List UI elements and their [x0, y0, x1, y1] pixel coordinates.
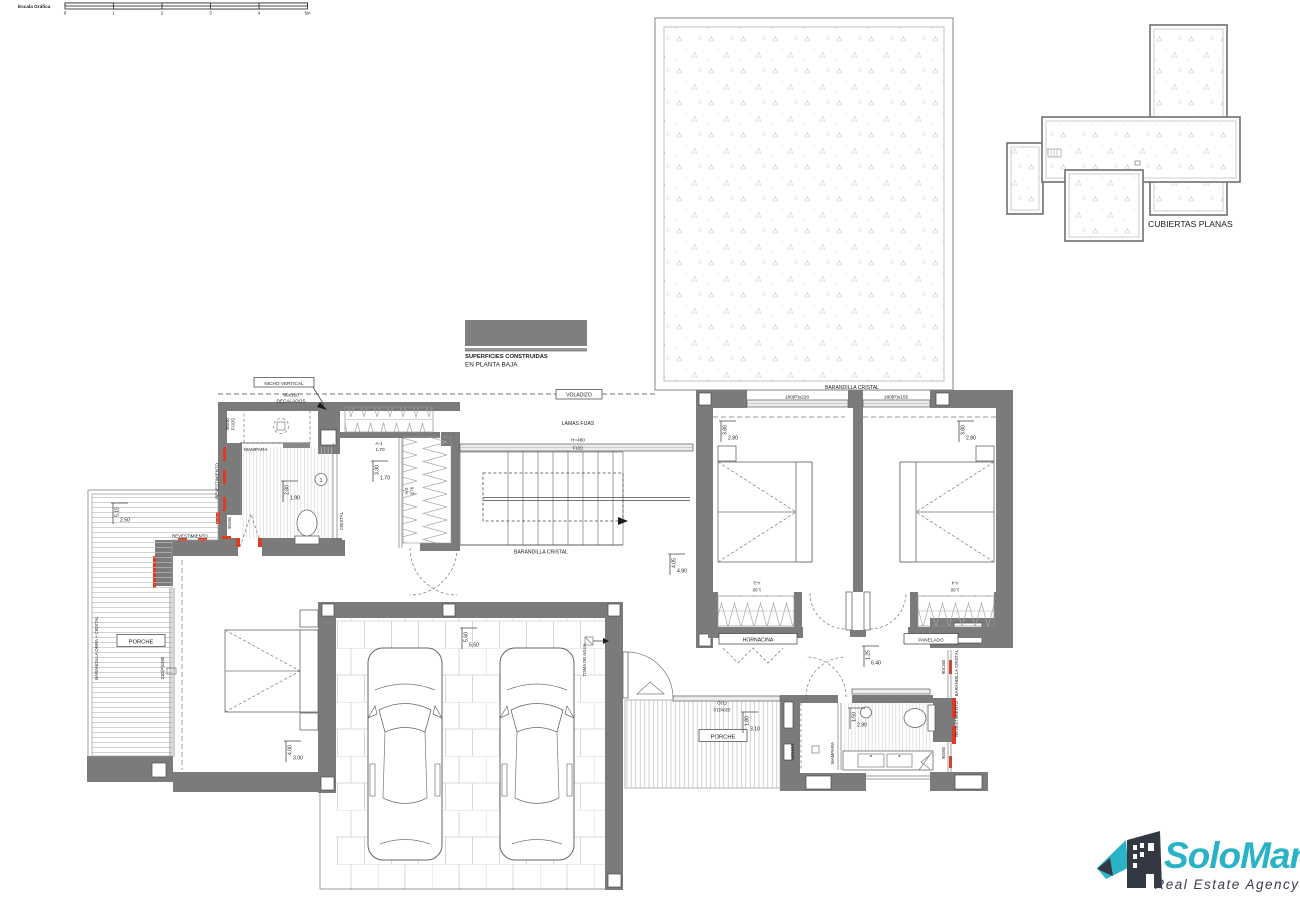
- dim-stair-v: 3.30: [375, 465, 381, 475]
- wardrobe-a4: A-4 1.60: [918, 581, 994, 627]
- garage: 5.60 5.50 TOMA DE AGUA: [320, 618, 609, 890]
- dim-bath2-h: 2.90: [857, 723, 867, 729]
- voladizo-label: VOLADIZO: [566, 393, 592, 399]
- size-90x160-right-label: 90x160: [941, 659, 946, 674]
- mampara-1-label: MAMPARA: [244, 447, 268, 452]
- room-number-1: 1: [320, 478, 323, 484]
- barandilla-stairs-label: BARANDILLA CRISTAL: [514, 550, 568, 556]
- legend-subtitle: EN PLANTA BAJA: [465, 362, 518, 369]
- roof-plan-label: CUBIERTAS PLANAS: [1148, 219, 1233, 229]
- dim-porch-left-h: 2.50: [120, 518, 130, 524]
- dim-hall-v: 4.05: [672, 558, 678, 568]
- dimension-bedroom2: 3.80 2.80: [719, 421, 738, 442]
- porch-door: [623, 652, 673, 698]
- dim-bath2-v: 1.50: [852, 712, 858, 722]
- size-90x60-left-label: 90x60: [227, 516, 232, 529]
- scale-tick-5: 5m: [304, 11, 310, 16]
- window-180x220-label: 180(P)x220: [785, 395, 810, 400]
- revestimiento-label-master: REVESTIMIENTO: [172, 534, 208, 539]
- dim-master-h: 3.00: [293, 756, 303, 762]
- legend-swatch: [465, 320, 587, 346]
- window-180x155-label: 180(P)x155: [884, 395, 909, 400]
- room-number-2-badge: [861, 707, 872, 718]
- porche-left-label: PORCHE: [129, 640, 154, 646]
- closet-a2-tall: A-2 2.70: [399, 437, 451, 548]
- toilet-1: [295, 510, 319, 544]
- barandilla-obra-label: BARANDILLA OBRA + CRISTAL: [94, 616, 99, 680]
- barandilla-right-label: BARANDILLA CRISTAL: [954, 649, 959, 696]
- toma-de-agua-label: TOMA DE AGUA: [582, 643, 587, 676]
- wardrobe-a2-size: 1.60: [752, 588, 761, 593]
- dim-bath1-v: 2.80: [285, 485, 291, 495]
- legend: SUPERFICIES CONSTRUIDAS EN PLANTA BAJA: [465, 320, 587, 369]
- cristal-label: CRISTAL: [339, 511, 344, 530]
- dim-hall2-h: 6.40: [871, 661, 881, 667]
- dim-porch-left-v: 5.15: [115, 507, 121, 517]
- roof-rect-left: [1007, 143, 1043, 214]
- flat-roof-area: [655, 18, 953, 390]
- car-2: [500, 648, 574, 860]
- dim-garage-h: 5.50: [469, 643, 479, 649]
- panelado-label: PANELADO: [918, 638, 944, 643]
- wardrobe-a1-label: A-1: [375, 441, 383, 446]
- dim-stair-h: 1.70: [380, 476, 390, 482]
- scale-tick-2: 2: [161, 11, 164, 16]
- floor-plan-drawing: Escala Gráfica 0 1 2 3 4 5m CUBIERTAS PL…: [0, 0, 1300, 900]
- wardrobe-a1-size: 1.70: [375, 447, 385, 452]
- fijo-small-size-label: 220x210: [713, 708, 730, 713]
- dim-bed2-v: 3.80: [723, 425, 729, 435]
- master-bedroom: 4.00 3.00: [225, 610, 318, 762]
- mampara-screen-1: [283, 443, 310, 448]
- dim-hall-h: 4.90: [677, 569, 687, 575]
- porch-left: 5.15 2.50 REVESTIMIENTO BARANDILLA OBRA …: [88, 490, 218, 757]
- hornacina-label: HORNACINA: [743, 638, 774, 644]
- decalados-size-label: 90x160: [283, 393, 299, 398]
- revestimiento-left-label: REVESTIMIENTO: [215, 463, 220, 499]
- scale-tick-0: 0: [64, 11, 67, 16]
- dimension-stair: 3.30 1.70: [371, 461, 390, 482]
- legend-title: SUPERFICIES CONSTRUIDAS: [465, 354, 548, 360]
- logo-tagline: Real Estate Agency: [1154, 877, 1299, 892]
- dim-bed2-h: 2.80: [728, 436, 738, 442]
- nichos-label: NICHOS: [790, 743, 795, 760]
- dim-bed3-h: 2.80: [966, 436, 976, 442]
- logo-name: SoloMar: [1164, 835, 1300, 876]
- decalados-label: DECALADOS: [277, 399, 306, 404]
- wardrobe-a2: A-2 1.60: [718, 581, 794, 627]
- floor-plan-page: Escala Gráfica 0 1 2 3 4 5m CUBIERTAS PL…: [0, 0, 1300, 900]
- porch-center: FIJO 220x210 PORCHE 1.80 3.10: [623, 652, 780, 788]
- closet-a2-size: 2.70: [410, 486, 415, 495]
- dim-porch-center-h: 3.10: [750, 727, 760, 733]
- wardrobe-a4-label: A-4: [951, 581, 958, 586]
- revestimiento-right-label: REVESTIMIENTO: [954, 701, 959, 737]
- dim-hall2-v: 1.25: [866, 650, 872, 660]
- lamas-fijas-label: LAMAS FIJAS: [562, 421, 595, 427]
- barandilla-top-label: BARANDILLA CRISTAL: [825, 385, 879, 391]
- wardrobe-a4-size: 1.60: [950, 588, 959, 593]
- porche-center-label: PORCHE: [711, 735, 736, 741]
- fijos-size-label: 90x90: [225, 417, 230, 430]
- showerhead-icon: [274, 419, 289, 434]
- scale-bar-label: Escala Gráfica: [18, 4, 51, 9]
- wardrobe-a2-label: A-2: [753, 581, 760, 586]
- scale-bar: Escala Gráfica 0 1 2 3 4 5m: [18, 3, 311, 16]
- dimension-hall2: 1.25 6.40: [862, 646, 881, 667]
- dim-bath1-h: 1.90: [290, 496, 300, 502]
- window-230x350-label: 230(P)x350: [160, 656, 165, 679]
- bedroom-3: 3.80 2.80 A-4 1.60 PANELADO: [810, 421, 994, 644]
- shower-drain-2: [812, 746, 819, 753]
- vanity-2: [843, 751, 933, 770]
- fijos-label: FIJOS: [231, 418, 236, 431]
- car-1: [368, 648, 442, 860]
- bed-2: [718, 446, 812, 562]
- dim-bed3-v: 3.80: [961, 425, 967, 435]
- fijo-small-label: FIJO: [717, 701, 727, 706]
- scale-tick-3: 3: [209, 11, 212, 16]
- dim-master-v: 4.00: [288, 745, 294, 755]
- bed-3: [900, 446, 994, 562]
- solomar-logo: SoloMar Real Estate Agency: [1097, 831, 1300, 892]
- scale-tick-4: 4: [258, 11, 261, 16]
- scale-tick-1: 1: [112, 11, 115, 16]
- roof-plan-mini: CUBIERTAS PLANAS: [1007, 25, 1240, 241]
- fijo-band-label: FIJO: [573, 446, 584, 451]
- dimension-bedroom3: 3.80 2.80: [957, 421, 976, 442]
- dimension-hall: 4.05 4.90: [668, 554, 687, 575]
- closet-a2-label: A-2: [404, 487, 409, 494]
- size-90x60-right-label: 90x60: [941, 746, 946, 759]
- nicho-vertical-label: NICHO VERTICAL: [264, 381, 304, 386]
- bed-master: [225, 610, 318, 730]
- roof-rect-square: [1065, 170, 1143, 241]
- dim-porch-center-v: 1.80: [745, 716, 751, 726]
- h480-label: H=480: [571, 438, 585, 443]
- dimension-master: 4.00 3.00: [284, 741, 303, 762]
- dim-garage-v: 5.60: [464, 632, 470, 642]
- mampara-2-label: MAMPARA: [830, 742, 835, 764]
